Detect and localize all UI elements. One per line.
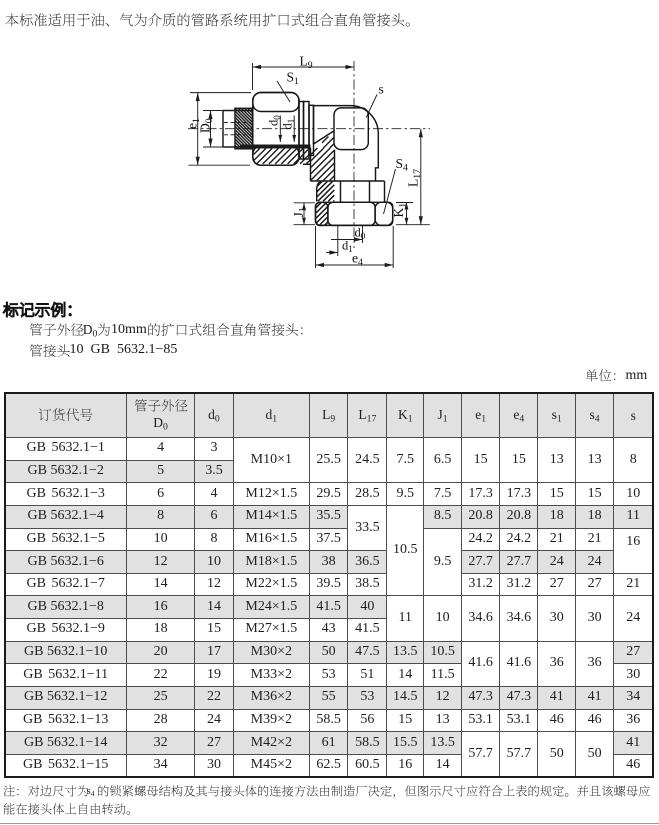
- svg-text:e4: e4: [352, 251, 363, 269]
- svg-text:L9: L9: [300, 54, 313, 72]
- svg-text:d1: d1: [281, 119, 297, 130]
- svg-text:K1: K1: [391, 203, 409, 218]
- svg-text:S1: S1: [287, 70, 300, 88]
- svg-text:d0: d0: [355, 226, 366, 242]
- svg-text:J1: J1: [291, 207, 309, 217]
- svg-text:s: s: [379, 82, 384, 97]
- svg-text:L17: L17: [406, 169, 424, 187]
- svg-text:S4: S4: [396, 156, 409, 174]
